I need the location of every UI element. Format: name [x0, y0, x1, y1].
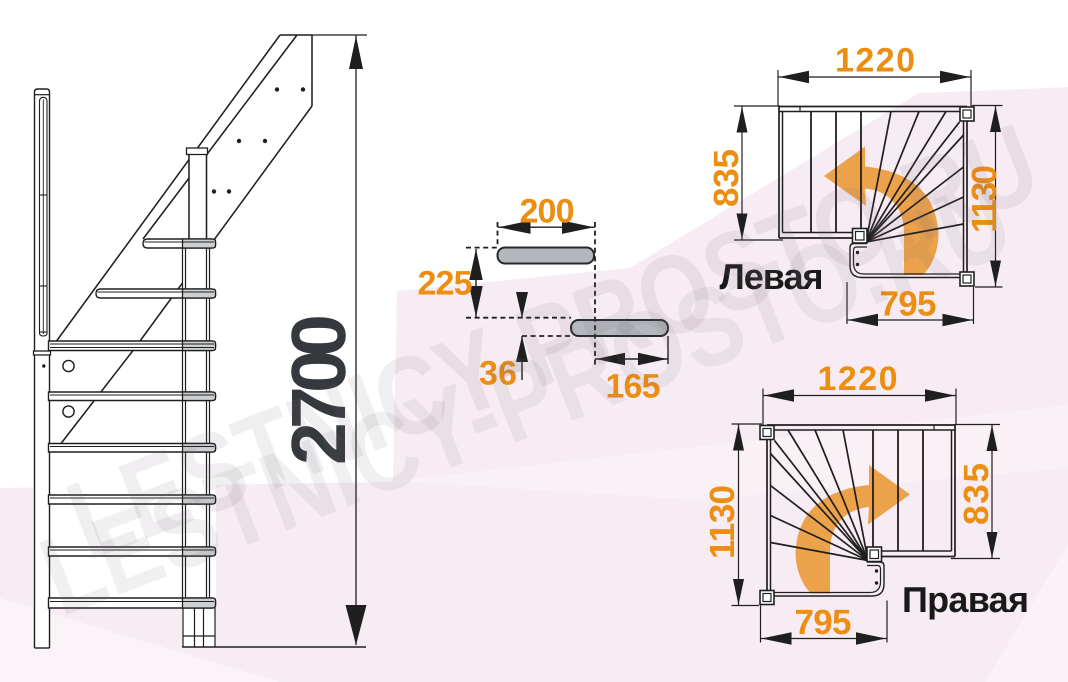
svg-text:200: 200	[520, 193, 575, 231]
svg-text:835: 835	[707, 149, 746, 207]
svg-text:1220: 1220	[835, 42, 915, 80]
svg-text:Правая: Правая	[902, 579, 1029, 620]
svg-text:1220: 1220	[818, 360, 898, 398]
svg-text:835: 835	[957, 463, 996, 525]
svg-text:225: 225	[418, 265, 473, 303]
svg-text:1130: 1130	[703, 485, 742, 559]
svg-text:795: 795	[795, 603, 852, 642]
